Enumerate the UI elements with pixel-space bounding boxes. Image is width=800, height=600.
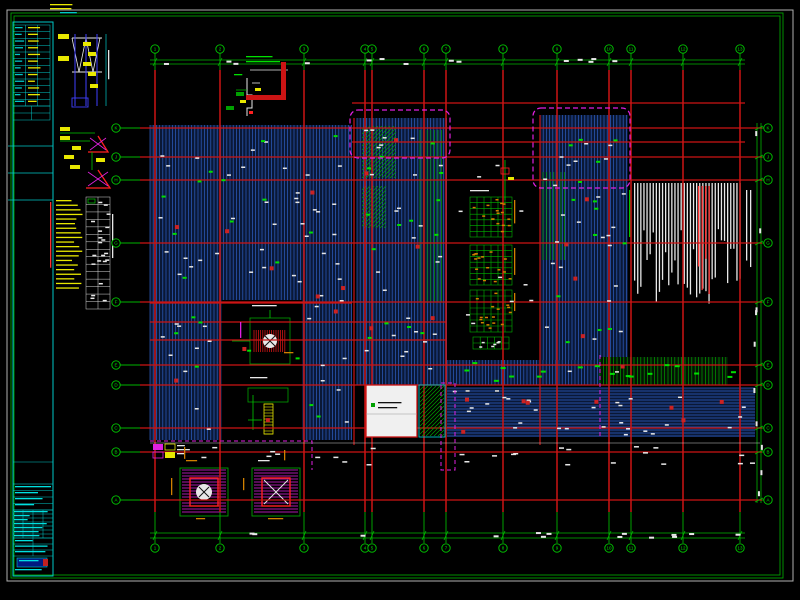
svg-text:B: B xyxy=(114,450,117,455)
svg-text:E: E xyxy=(114,363,117,368)
svg-text:F: F xyxy=(115,300,118,305)
svg-text:A: A xyxy=(766,498,769,503)
svg-text:G: G xyxy=(114,241,118,246)
svg-text:E: E xyxy=(766,363,769,368)
svg-text:H: H xyxy=(766,178,769,183)
cad-sheet: 1122334455667788991010111112121313KKJJHH… xyxy=(0,0,800,600)
title-block-strip xyxy=(8,22,53,576)
cad-model-space: 1122334455667788991010111112121313KKJJHH… xyxy=(0,0,800,600)
svg-text:K: K xyxy=(766,126,769,131)
svg-text:J: J xyxy=(767,155,769,160)
svg-text:10: 10 xyxy=(606,546,612,551)
svg-text:B: B xyxy=(766,450,769,455)
svg-text:12: 12 xyxy=(680,47,686,52)
svg-text:A: A xyxy=(114,498,117,503)
svg-text:K: K xyxy=(114,126,117,131)
svg-text:13: 13 xyxy=(737,546,743,551)
svg-text:11: 11 xyxy=(629,546,634,551)
svg-text:11: 11 xyxy=(629,47,634,52)
svg-text:12: 12 xyxy=(680,546,686,551)
svg-text:F: F xyxy=(767,300,770,305)
svg-text:13: 13 xyxy=(737,47,743,52)
corner-annotations xyxy=(50,4,77,13)
svg-text:10: 10 xyxy=(606,47,612,52)
slab-hatch-blocks xyxy=(150,115,755,516)
svg-text:J: J xyxy=(115,155,117,160)
svg-text:G: G xyxy=(766,241,770,246)
svg-text:H: H xyxy=(114,178,117,183)
